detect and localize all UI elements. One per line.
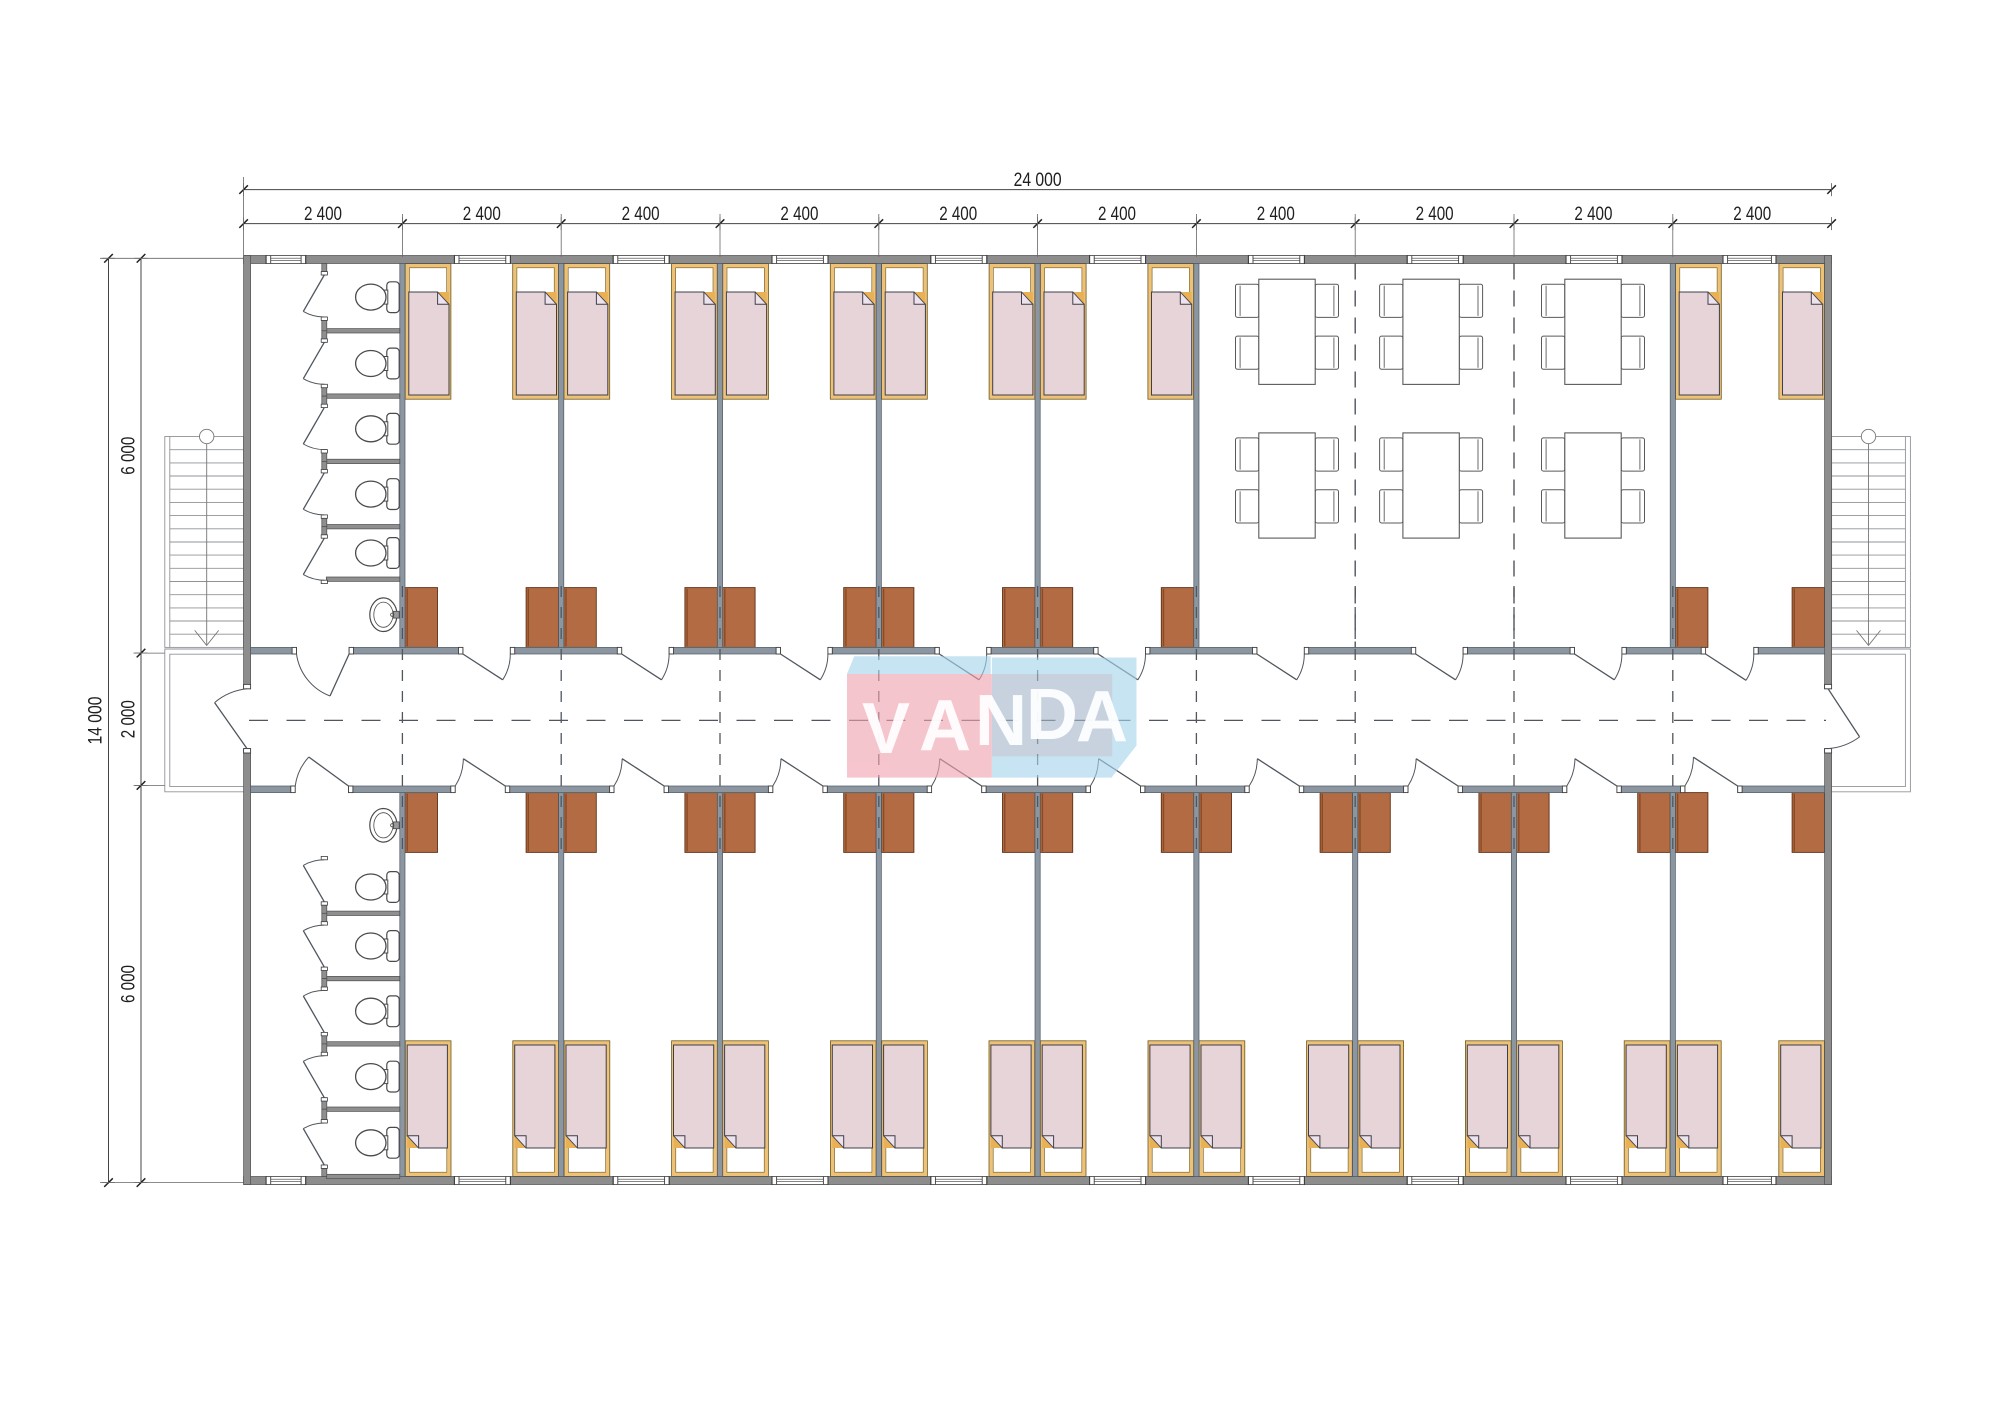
svg-text:A: A (919, 686, 971, 766)
svg-text:2 400: 2 400 (1098, 204, 1136, 225)
svg-text:V: V (862, 689, 910, 769)
svg-text:14 000: 14 000 (86, 697, 107, 745)
svg-text:2 400: 2 400 (622, 204, 660, 225)
svg-text:6 000: 6 000 (119, 965, 140, 1003)
svg-text:2 400: 2 400 (304, 204, 342, 225)
svg-text:24 000: 24 000 (1014, 170, 1062, 191)
svg-text:N: N (975, 681, 1027, 761)
svg-text:6 000: 6 000 (119, 437, 140, 475)
svg-text:2 400: 2 400 (780, 204, 818, 225)
svg-text:2 400: 2 400 (463, 204, 501, 225)
svg-text:2 400: 2 400 (1733, 204, 1771, 225)
svg-text:2 400: 2 400 (1257, 204, 1295, 225)
svg-text:2 400: 2 400 (1416, 204, 1454, 225)
svg-text:2 400: 2 400 (1574, 204, 1612, 225)
svg-text:2 000: 2 000 (119, 700, 140, 738)
svg-text:D: D (1026, 675, 1078, 755)
svg-text:A: A (1076, 677, 1128, 757)
svg-text:2 400: 2 400 (939, 204, 977, 225)
